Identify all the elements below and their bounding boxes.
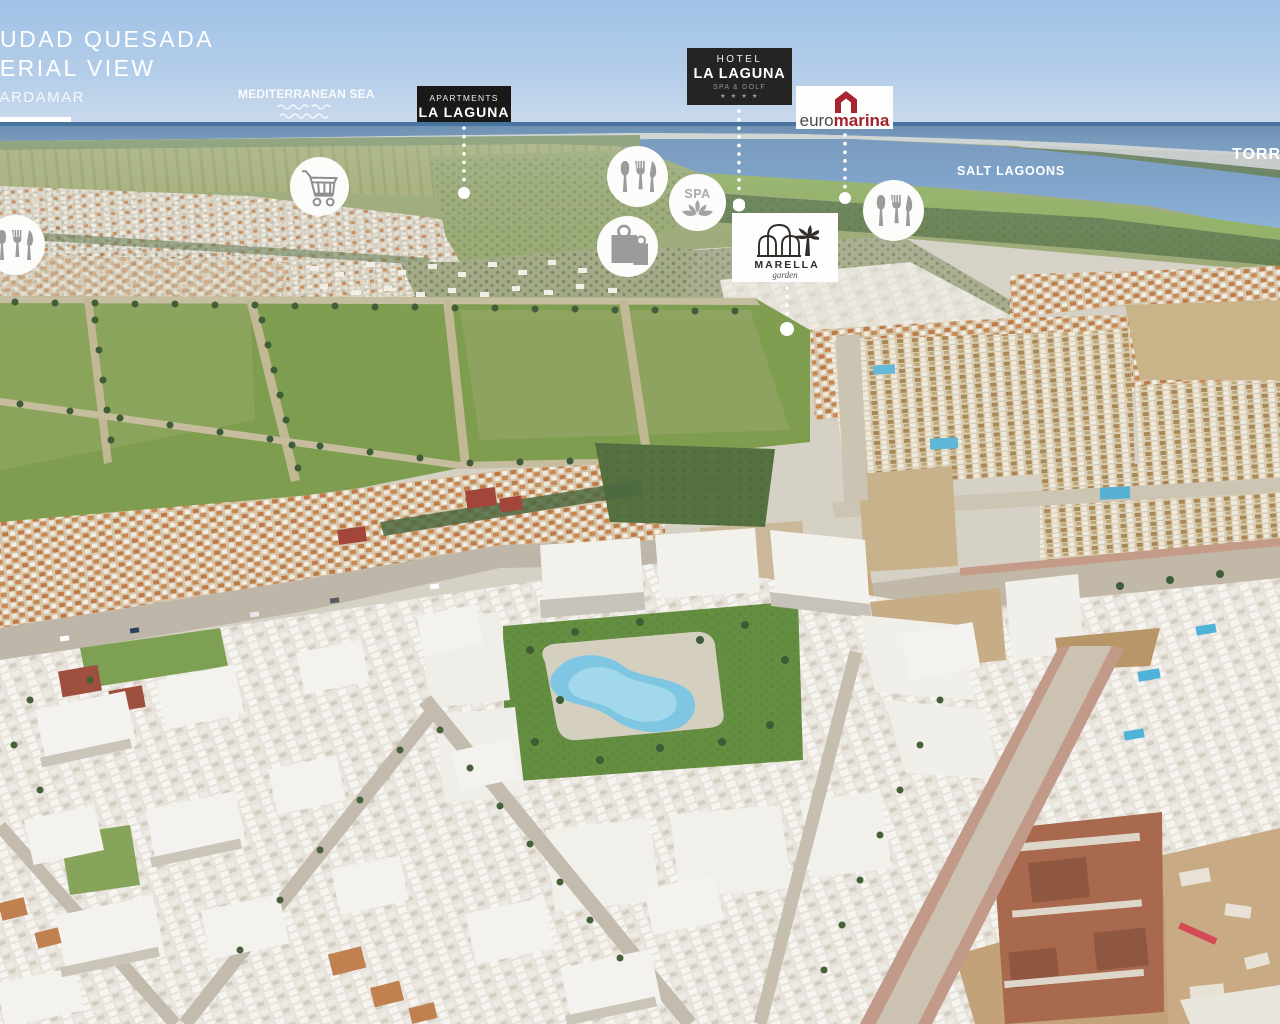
svg-text:SPA: SPA [684, 187, 710, 201]
